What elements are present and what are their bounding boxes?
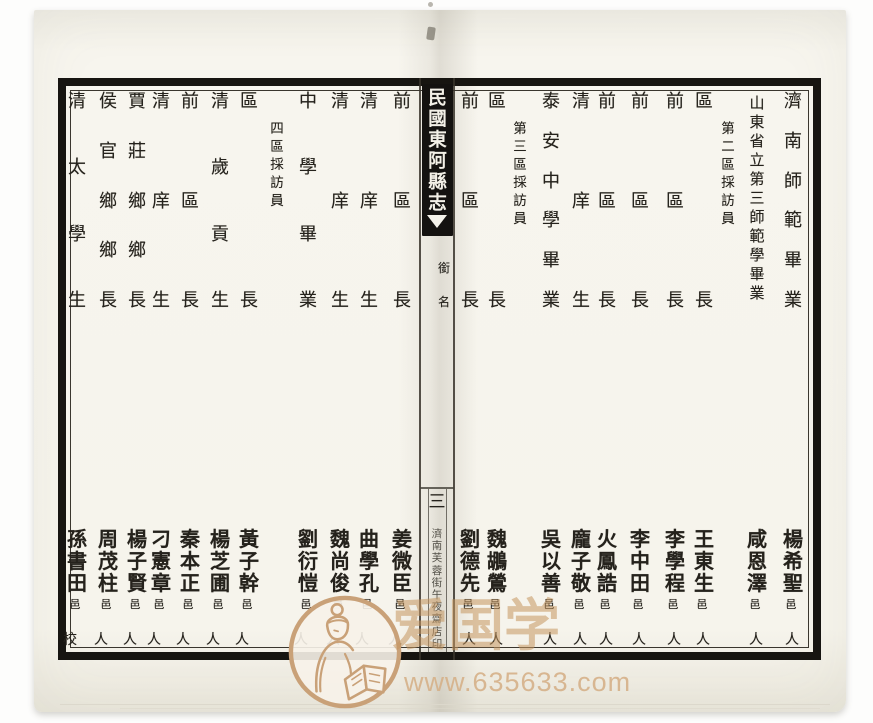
qualification-glyph: 區 [721, 159, 735, 173]
person-name-glyph: 黃 [239, 529, 259, 549]
qualification-glyph: 業 [542, 292, 560, 310]
qualification-glyph: 生 [211, 292, 229, 310]
qualification-glyph: 訪 [513, 195, 527, 209]
person-name-glyph: 先 [460, 573, 480, 593]
person-name-glyph: 田 [67, 573, 87, 593]
qualification-glyph: 長 [695, 292, 713, 310]
qualification-glyph: 訪 [721, 195, 735, 209]
footer-glyph: 人 [667, 633, 681, 647]
qualification-glyph: 區 [598, 193, 616, 211]
person-name-glyph: 恩 [747, 551, 767, 571]
qualification-glyph: 歲 [211, 159, 229, 177]
qualification-glyph: 長 [240, 292, 258, 310]
qualification-glyph: 長 [461, 292, 479, 310]
footer-glyph: 人 [632, 633, 646, 647]
qualification-glyph: 清 [331, 93, 349, 111]
qualification-glyph: 生 [68, 292, 86, 310]
person-name-glyph: 中 [630, 551, 650, 571]
page-edge-line [60, 704, 830, 705]
qualification-glyph: 區 [240, 93, 258, 111]
qualification-glyph: 第 [749, 172, 764, 187]
footer-glyph: 人 [573, 633, 587, 647]
footer-glyph: 人 [123, 633, 137, 647]
footer-glyph: 人 [294, 633, 308, 647]
qualification-glyph: 學 [542, 212, 560, 230]
person-name-glyph: 火 [597, 529, 617, 549]
qualification-glyph: 前 [461, 93, 479, 111]
native-place-glyph: 邑 [697, 599, 708, 610]
qualification-glyph: 前 [181, 93, 199, 111]
person-name-glyph: 龐 [571, 529, 591, 549]
qualification-glyph: 中 [542, 173, 560, 191]
person-name-glyph: 芝 [210, 551, 230, 571]
qualification-glyph: 長 [99, 292, 117, 310]
qualification-glyph: 長 [666, 292, 684, 310]
person-name-glyph: 正 [180, 573, 200, 593]
qualification-glyph: 採 [270, 159, 284, 173]
person-name-glyph: 學 [665, 551, 685, 571]
qualification-glyph: 師 [784, 173, 802, 191]
person-name-glyph: 聖 [783, 573, 803, 593]
footer-glyph: 人 [749, 633, 763, 647]
qualification-glyph: 畢 [784, 252, 802, 270]
qualification-glyph: 畢 [299, 226, 317, 244]
person-name-glyph: 咸 [747, 529, 767, 549]
footer-glyph: 人 [206, 633, 220, 647]
qualification-glyph: 長 [393, 292, 411, 310]
person-name-glyph: 鶯 [487, 573, 507, 593]
qualification-glyph: 區 [695, 93, 713, 111]
qualification-glyph: 清 [152, 93, 170, 111]
footer-glyph: 人 [176, 633, 190, 647]
qualification-glyph: 生 [152, 292, 170, 310]
qualification-glyph: 第 [513, 123, 527, 137]
native-place-glyph: 邑 [333, 599, 344, 610]
footer-glyph: 人 [235, 633, 249, 647]
native-place-glyph: 邑 [101, 599, 112, 610]
qualification-glyph: 學 [68, 226, 86, 244]
person-name-glyph: 孔 [359, 573, 379, 593]
person-name-glyph: 孫 [67, 529, 87, 549]
qualification-glyph: 三 [749, 191, 764, 206]
person-name-glyph: 楊 [783, 529, 803, 549]
qualification-glyph: 貢 [211, 226, 229, 244]
qualification-glyph: 長 [631, 292, 649, 310]
qualification-glyph: 採 [513, 177, 527, 191]
person-name-glyph: 愷 [298, 573, 318, 593]
qualification-glyph: 區 [666, 193, 684, 211]
qualification-glyph: 員 [721, 213, 735, 227]
qualification-glyph: 庠 [572, 193, 590, 211]
qualification-glyph: 清 [572, 93, 590, 111]
person-name-glyph: 誥 [597, 573, 617, 593]
qualification-glyph: 採 [721, 177, 735, 191]
qualification-glyph: 長 [128, 292, 146, 310]
qualification-glyph: 訪 [270, 177, 284, 191]
qualification-glyph: 業 [784, 292, 802, 310]
native-place-glyph: 邑 [574, 599, 585, 610]
person-name-glyph: 憲 [151, 551, 171, 571]
person-name-glyph: 俊 [330, 573, 350, 593]
native-place-glyph: 邑 [70, 599, 81, 610]
qualification-glyph: 生 [331, 292, 349, 310]
native-place-glyph: 邑 [750, 599, 761, 610]
scanned-book-spread: 民國東阿縣志 銜名 三 濟南芙蓉街午夜齋店印 濟南師範畢業楊希聖邑人山東省立第三… [0, 0, 873, 723]
qualification-glyph: 鄉 [99, 193, 117, 211]
qualification-glyph: 鄉 [128, 193, 146, 211]
qualification-glyph: 範 [749, 229, 764, 244]
person-name-glyph: 子 [239, 551, 259, 571]
person-name-glyph: 魏 [487, 529, 507, 549]
footer-glyph: 人 [326, 633, 340, 647]
person-name-glyph: 李 [630, 529, 650, 549]
footer-glyph: 人 [489, 633, 503, 647]
qualification-glyph: 區 [631, 193, 649, 211]
qualification-glyph: 鄉 [99, 242, 117, 260]
person-name-glyph: 吳 [541, 529, 561, 549]
native-place-glyph: 邑 [490, 599, 501, 610]
person-name-glyph: 劉 [460, 529, 480, 549]
qualification-glyph: 員 [513, 213, 527, 227]
qualification-glyph: 學 [749, 248, 764, 263]
qualification-glyph: 員 [270, 195, 284, 209]
person-name-glyph: 楊 [127, 529, 147, 549]
person-name-glyph: 微 [392, 551, 412, 571]
qualification-glyph: 生 [572, 292, 590, 310]
qualification-glyph: 東 [749, 115, 764, 130]
qualification-glyph: 師 [749, 210, 764, 225]
person-name-glyph: 曲 [359, 529, 379, 549]
person-name-glyph: 澤 [747, 573, 767, 593]
person-name-glyph: 刁 [151, 529, 171, 549]
person-name-glyph: 圃 [210, 573, 230, 593]
qualification-glyph: 前 [393, 93, 411, 111]
qualification-glyph: 官 [99, 143, 117, 161]
qualification-glyph: 泰 [542, 93, 560, 111]
qualification-glyph: 第 [721, 123, 735, 137]
footer-glyph: 人 [355, 633, 369, 647]
qualification-glyph: 南 [784, 133, 802, 151]
person-name-glyph: 生 [694, 573, 714, 593]
person-name-glyph: 程 [665, 573, 685, 593]
qualification-glyph: 區 [181, 193, 199, 211]
person-name-glyph: 鳳 [597, 551, 617, 571]
footer-glyph: 人 [599, 633, 613, 647]
person-name-glyph: 敬 [571, 573, 591, 593]
person-name-glyph: 以 [541, 551, 561, 571]
qualification-glyph: 長 [181, 292, 199, 310]
qualification-glyph: 業 [299, 292, 317, 310]
native-place-glyph: 邑 [154, 599, 165, 610]
person-name-glyph: 善 [541, 573, 561, 593]
person-name-glyph: 尚 [330, 551, 350, 571]
person-name-glyph: 秦 [180, 529, 200, 549]
qualification-glyph: 區 [513, 159, 527, 173]
qualification-glyph: 生 [360, 292, 378, 310]
person-name-glyph: 茂 [98, 551, 118, 571]
person-name-glyph: 子 [127, 551, 147, 571]
qualification-glyph: 區 [393, 193, 411, 211]
native-place-glyph: 邑 [183, 599, 194, 610]
qualification-glyph: 畢 [542, 252, 560, 270]
native-place-glyph: 邑 [213, 599, 224, 610]
native-place-glyph: 邑 [544, 599, 555, 610]
native-place-glyph: 邑 [395, 599, 406, 610]
person-name-glyph: 賢 [127, 573, 147, 593]
qualification-glyph: 清 [68, 93, 86, 111]
qualification-glyph: 庠 [152, 193, 170, 211]
person-name-glyph: 德 [460, 551, 480, 571]
qualification-glyph: 濟 [784, 93, 802, 111]
qualification-glyph: 四 [270, 123, 284, 137]
person-name-glyph: 鶘 [487, 551, 507, 571]
qualification-glyph: 庠 [331, 193, 349, 211]
qualification-glyph: 立 [749, 153, 764, 168]
person-name-glyph: 學 [359, 551, 379, 571]
native-place-glyph: 邑 [786, 599, 797, 610]
qualification-glyph: 長 [598, 292, 616, 310]
native-place-glyph: 邑 [633, 599, 644, 610]
qualification-glyph: 省 [749, 134, 764, 149]
native-place-glyph: 邑 [463, 599, 474, 610]
person-name-glyph: 子 [571, 551, 591, 571]
footer-glyph: 人 [147, 633, 161, 647]
native-place-glyph: 邑 [600, 599, 611, 610]
person-name-glyph: 周 [98, 529, 118, 549]
qualification-glyph: 三 [513, 141, 527, 155]
person-name-glyph: 魏 [330, 529, 350, 549]
footer-glyph: 人 [462, 633, 476, 647]
qualification-glyph: 區 [461, 193, 479, 211]
person-name-glyph: 柱 [98, 573, 118, 593]
footer-glyph: 人 [543, 633, 557, 647]
qualification-glyph: 中 [299, 93, 317, 111]
qualification-glyph: 清 [211, 93, 229, 111]
qualification-glyph: 清 [360, 93, 378, 111]
person-name-glyph: 衍 [298, 551, 318, 571]
qualification-glyph: 山 [749, 96, 764, 111]
footer-glyph: 人 [696, 633, 710, 647]
native-place-glyph: 邑 [668, 599, 679, 610]
person-name-glyph: 臣 [392, 573, 412, 593]
person-name-glyph: 楊 [210, 529, 230, 549]
person-name-glyph: 希 [783, 551, 803, 571]
qualification-glyph: 畢 [749, 267, 764, 282]
footer-glyph: 校 [63, 633, 77, 647]
qualification-glyph: 業 [749, 286, 764, 301]
native-place-glyph: 邑 [242, 599, 253, 610]
native-place-glyph: 邑 [362, 599, 373, 610]
qualification-glyph: 侯 [99, 93, 117, 111]
qualification-glyph: 範 [784, 212, 802, 230]
native-place-glyph: 邑 [301, 599, 312, 610]
roster-columns: 濟南師範畢業楊希聖邑人山東省立第三師範學畢業咸恩澤邑人第二區採訪員區長王東生邑人… [0, 0, 873, 723]
footer-glyph: 人 [785, 633, 799, 647]
qualification-glyph: 前 [666, 93, 684, 111]
person-name-glyph: 書 [67, 551, 87, 571]
qualification-glyph: 庠 [360, 193, 378, 211]
qualification-glyph: 長 [488, 292, 506, 310]
qualification-glyph: 區 [488, 93, 506, 111]
qualification-glyph: 安 [542, 133, 560, 151]
person-name-glyph: 王 [694, 529, 714, 549]
person-name-glyph: 東 [694, 551, 714, 571]
native-place-glyph: 邑 [130, 599, 141, 610]
person-name-glyph: 劉 [298, 529, 318, 549]
qualification-glyph: 二 [721, 141, 735, 155]
person-name-glyph: 李 [665, 529, 685, 549]
person-name-glyph: 幹 [239, 573, 259, 593]
qualification-glyph: 莊 [128, 143, 146, 161]
qualification-glyph: 學 [299, 159, 317, 177]
person-name-glyph: 章 [151, 573, 171, 593]
person-name-glyph: 本 [180, 551, 200, 571]
page-edge-line [120, 708, 820, 709]
footer-glyph: 人 [94, 633, 108, 647]
qualification-glyph: 賈 [128, 93, 146, 111]
qualification-glyph: 鄉 [128, 242, 146, 260]
qualification-glyph: 前 [631, 93, 649, 111]
person-name-glyph: 田 [630, 573, 650, 593]
qualification-glyph: 區 [270, 141, 284, 155]
qualification-glyph: 太 [68, 159, 86, 177]
qualification-glyph: 前 [598, 93, 616, 111]
person-name-glyph: 姜 [392, 529, 412, 549]
footer-glyph: 人 [388, 633, 402, 647]
